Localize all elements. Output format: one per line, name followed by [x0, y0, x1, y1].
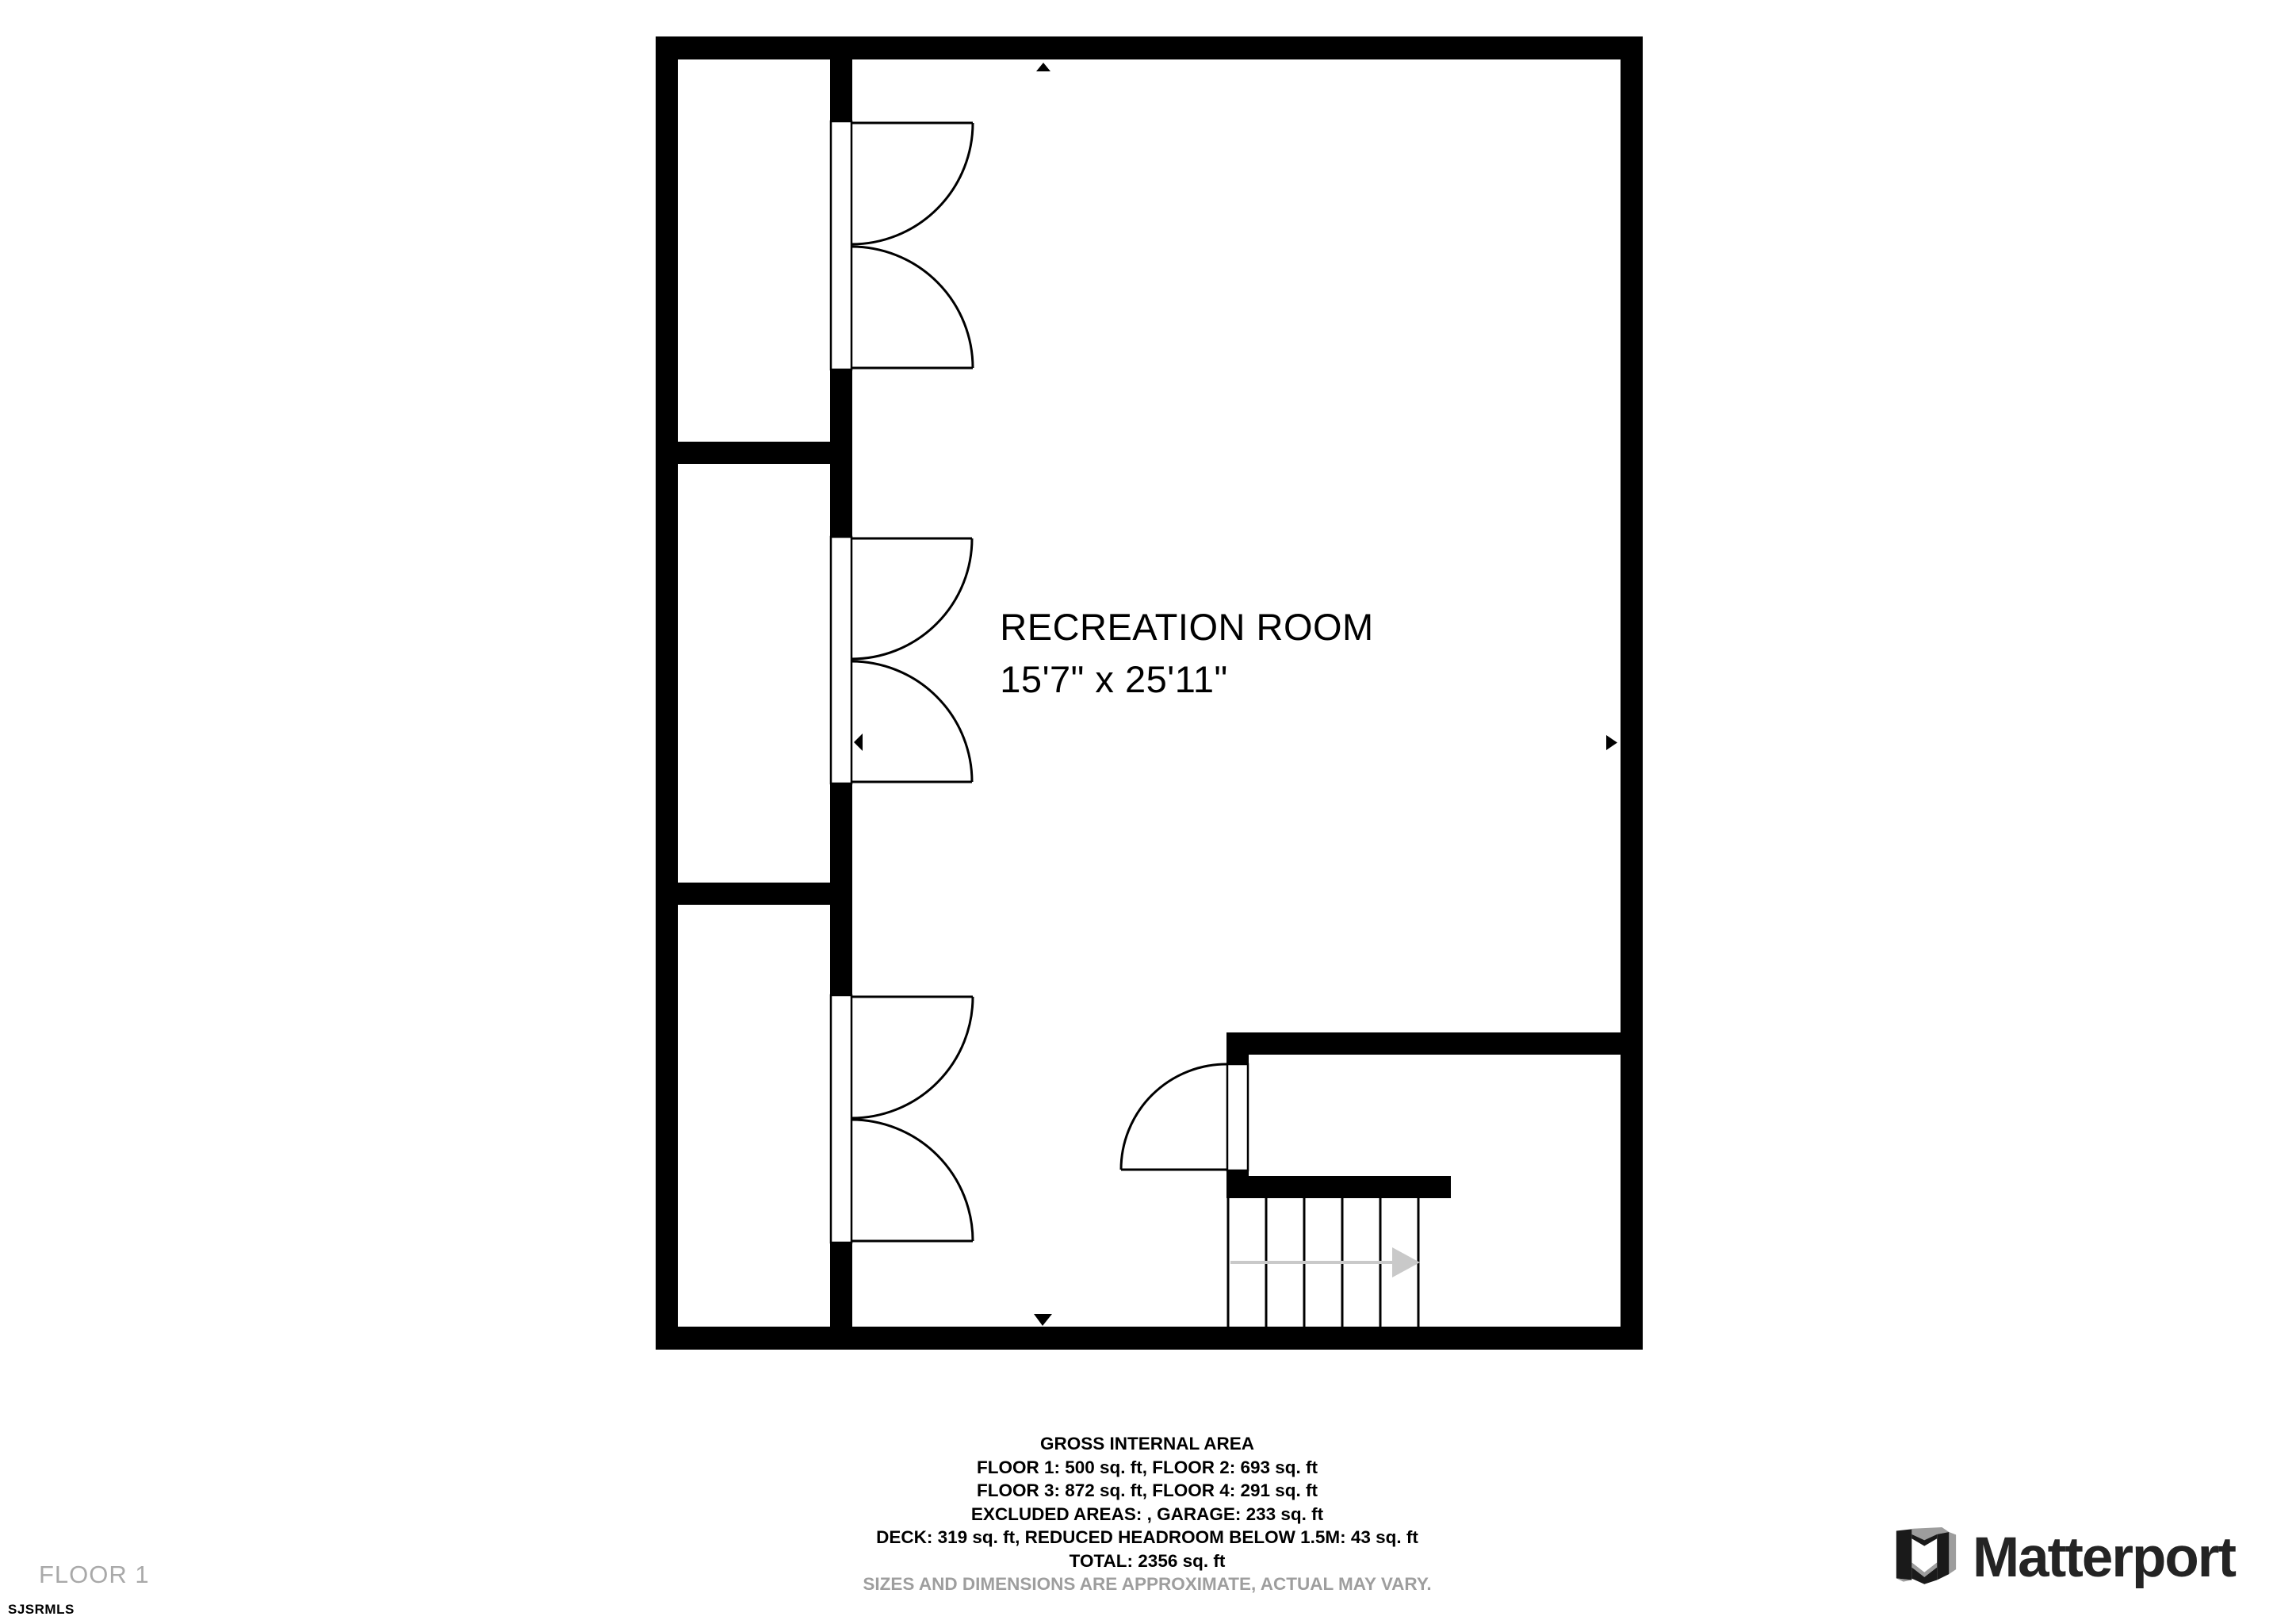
area-summary-line: DECK: 319 sq. ft, REDUCED HEADROOM BELOW… — [863, 1526, 1431, 1549]
closet-divider-wall-2 — [678, 883, 830, 905]
room-dimensions: 15'7" x 25'11" — [1000, 653, 1373, 706]
dimension-arrow-up-icon — [1036, 63, 1050, 71]
matterport-logo: Matterport — [1889, 1527, 2235, 1589]
floor-plan-canvas — [0, 0, 2296, 1624]
stairs-head-wall — [1226, 1176, 1451, 1198]
closet-door-1-jamb — [831, 121, 851, 370]
logo-black-left-pillar — [1896, 1529, 1911, 1580]
stair-enclosure-top-wall — [1226, 1032, 1621, 1055]
area-summary-line: FLOOR 1: 500 sq. ft, FLOOR 2: 693 sq. ft — [863, 1456, 1431, 1480]
wall-bottom — [656, 1327, 1643, 1350]
area-summary-line: FLOOR 3: 872 sq. ft, FLOOR 4: 291 sq. ft — [863, 1479, 1431, 1503]
wall-left — [656, 36, 678, 1350]
area-summary-disclaimer: SIZES AND DIMENSIONS ARE APPROXIMATE, AC… — [863, 1572, 1431, 1596]
wall-top — [656, 36, 1643, 59]
closet-wall-segment-b — [830, 370, 852, 537]
closet-wall-segment-a — [830, 59, 852, 121]
closet-wall-segment-c — [830, 783, 852, 995]
closet-divider-wall-1 — [678, 442, 830, 464]
room-name: RECREATION ROOM — [1000, 601, 1373, 653]
staircase — [1228, 1198, 1420, 1327]
dimension-arrow-right-icon — [1606, 735, 1617, 750]
stair-direction-arrow-head-icon — [1392, 1247, 1420, 1277]
closet-wall-segment-d — [830, 1243, 852, 1327]
wall-right — [1621, 36, 1643, 1350]
closet-door-2-swing — [851, 538, 972, 782]
matterport-mark-icon — [1889, 1527, 1957, 1589]
closet-door-1-swing — [851, 123, 973, 368]
logo-black-right-pillar — [1937, 1532, 1949, 1580]
area-summary-title: GROSS INTERNAL AREA — [863, 1432, 1431, 1456]
matterport-wordmark: Matterport — [1973, 1527, 2235, 1589]
room-label: RECREATION ROOM 15'7" x 25'11" — [1000, 601, 1373, 706]
floorplan-page: RECREATION ROOM 15'7" x 25'11" GROSS INT… — [0, 0, 2296, 1624]
area-summary-total: TOTAL: 2356 sq. ft — [863, 1549, 1431, 1573]
dimension-arrow-left-icon — [854, 733, 863, 751]
stair-door-swing — [1121, 1064, 1226, 1170]
dimension-arrow-down-icon — [1034, 1314, 1052, 1326]
closet-door-2-jamb — [831, 537, 851, 783]
logo-gray-side — [1949, 1532, 1956, 1574]
floor-label: FLOOR 1 — [39, 1561, 150, 1589]
closet-door-3-swing — [851, 997, 973, 1241]
stair-door-jamb — [1227, 1064, 1248, 1170]
closet-door-3-jamb — [831, 995, 851, 1243]
area-summary-line: EXCLUDED AREAS: , GARAGE: 233 sq. ft — [863, 1503, 1431, 1526]
area-summary: GROSS INTERNAL AREA FLOOR 1: 500 sq. ft,… — [863, 1432, 1431, 1596]
mls-code-label: SJSRMLS — [8, 1602, 75, 1618]
